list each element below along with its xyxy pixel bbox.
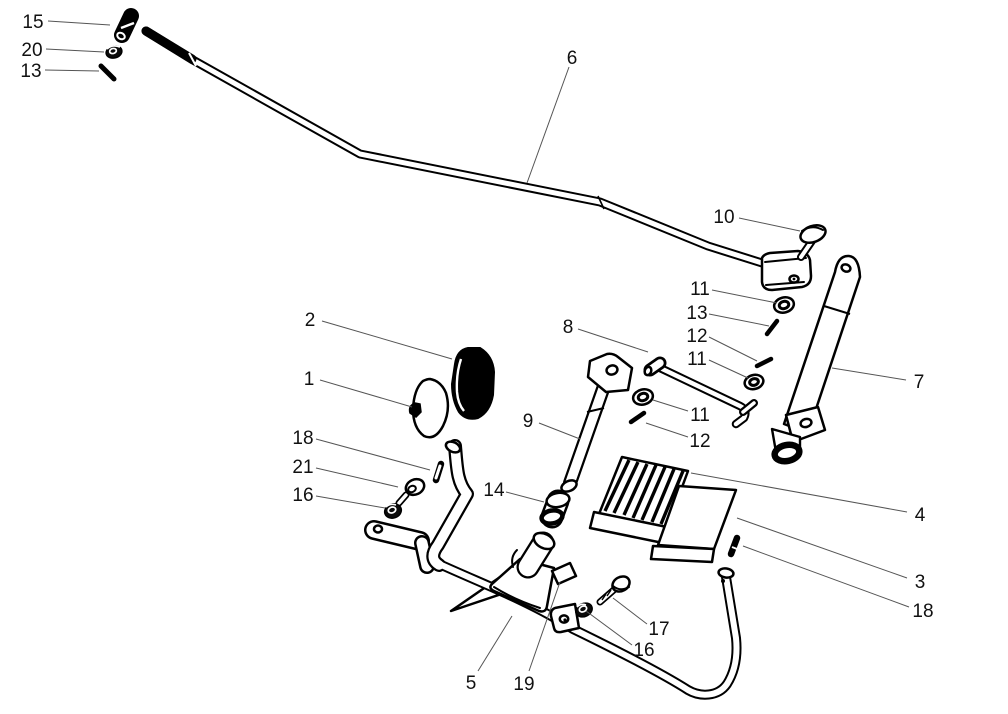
callout-label-16-26: 16	[633, 640, 654, 661]
callout-label-9-11: 9	[523, 411, 534, 432]
callout-label-2-12: 2	[305, 310, 316, 331]
callout-leader-16-16	[316, 496, 385, 508]
callout-label-4-20: 4	[915, 505, 926, 526]
callout-leader-10-4	[739, 218, 800, 231]
diagram-canvas: 1520136101113121187921182116141112431851…	[0, 0, 1008, 714]
callout-leader-11-8	[709, 360, 748, 378]
part-13-pin-b	[767, 321, 777, 334]
part-17-bolt	[600, 573, 632, 602]
part-18-pin-a	[436, 464, 441, 480]
callout-label-1-13: 1	[304, 369, 315, 390]
callout-leader-9-11	[539, 423, 580, 439]
callout-label-11-18: 11	[690, 405, 710, 426]
callout-leader-1-13	[320, 380, 412, 407]
callout-label-17-25: 17	[648, 619, 669, 640]
callout-label-16-16: 16	[292, 485, 313, 506]
callout-label-18-14: 18	[292, 428, 313, 449]
callout-label-11-8: 11	[687, 349, 707, 370]
post-tube-opening	[718, 568, 734, 579]
part-21-bolt	[399, 476, 427, 503]
callout-leader-8-9	[578, 329, 648, 352]
callout-label-10-4: 10	[713, 207, 734, 228]
callout-label-21-15: 21	[292, 457, 313, 478]
callout-label-20-1: 20	[21, 40, 42, 61]
callout-label-8-9: 8	[563, 317, 574, 338]
callout-leader-11-18	[653, 400, 688, 411]
callout-leader-18-14	[316, 439, 430, 470]
part-10-clevis-bolt	[798, 222, 828, 257]
callout-leader-12-19	[646, 423, 688, 437]
callout-leader-13-2	[45, 70, 99, 71]
callout-leader-12-7	[709, 337, 757, 361]
part-15-knob	[116, 16, 134, 41]
callout-label-11-5: 11	[690, 279, 710, 300]
exploded-parts-diagram: 1520136101113121187921182116141112431851…	[0, 0, 1008, 714]
part-13-pin-a	[101, 66, 114, 79]
part-14-bushing	[541, 491, 571, 525]
part-6-push-rod	[146, 31, 762, 263]
callout-label-13-6: 13	[686, 303, 707, 324]
callout-leader-11-5	[712, 290, 777, 303]
callout-leader-21-15	[316, 468, 398, 487]
callout-leader-17-25	[613, 598, 647, 624]
part-19-key	[552, 563, 576, 584]
callout-leader-18-22	[743, 546, 909, 607]
part-18-pin-b	[731, 538, 737, 554]
callout-leader-14-17	[506, 492, 544, 502]
callout-leader-7-10	[832, 368, 906, 380]
callout-label-12-19: 12	[689, 431, 710, 452]
callout-label-19-24: 19	[513, 674, 534, 695]
part-12-pin-a	[757, 359, 771, 366]
callout-label-5-23: 5	[466, 673, 477, 694]
lever-bore	[773, 443, 801, 464]
callout-label-13-2: 13	[20, 61, 41, 82]
callout-label-7-10: 7	[914, 372, 925, 393]
callout-label-15-0: 15	[22, 12, 43, 33]
callout-label-14-17: 14	[483, 480, 505, 501]
callout-leader-15-0	[48, 21, 110, 25]
part-11-washer-c	[631, 387, 654, 407]
callout-label-3-21: 3	[915, 572, 926, 593]
part-11-washer-a	[772, 295, 795, 315]
callout-leader-2-12	[322, 321, 452, 359]
part-11-washer-b	[743, 373, 765, 391]
part-12-pin-b	[631, 413, 644, 422]
callout-label-18-22: 18	[912, 601, 933, 622]
part-2-pedal-pad	[452, 348, 494, 419]
part-20-nut	[105, 44, 124, 60]
bracket-hole	[374, 526, 382, 533]
post-hole	[721, 579, 725, 583]
callout-leader-13-6	[709, 314, 769, 326]
callout-leader-5-23	[478, 616, 512, 671]
callout-label-6-3: 6	[567, 48, 578, 69]
callout-leader-6-3	[527, 67, 569, 183]
part-1-pedal-plate	[410, 379, 448, 437]
callout-label-12-7: 12	[686, 326, 707, 347]
callout-leader-3-21	[737, 518, 907, 578]
callout-leader-20-1	[46, 49, 104, 52]
